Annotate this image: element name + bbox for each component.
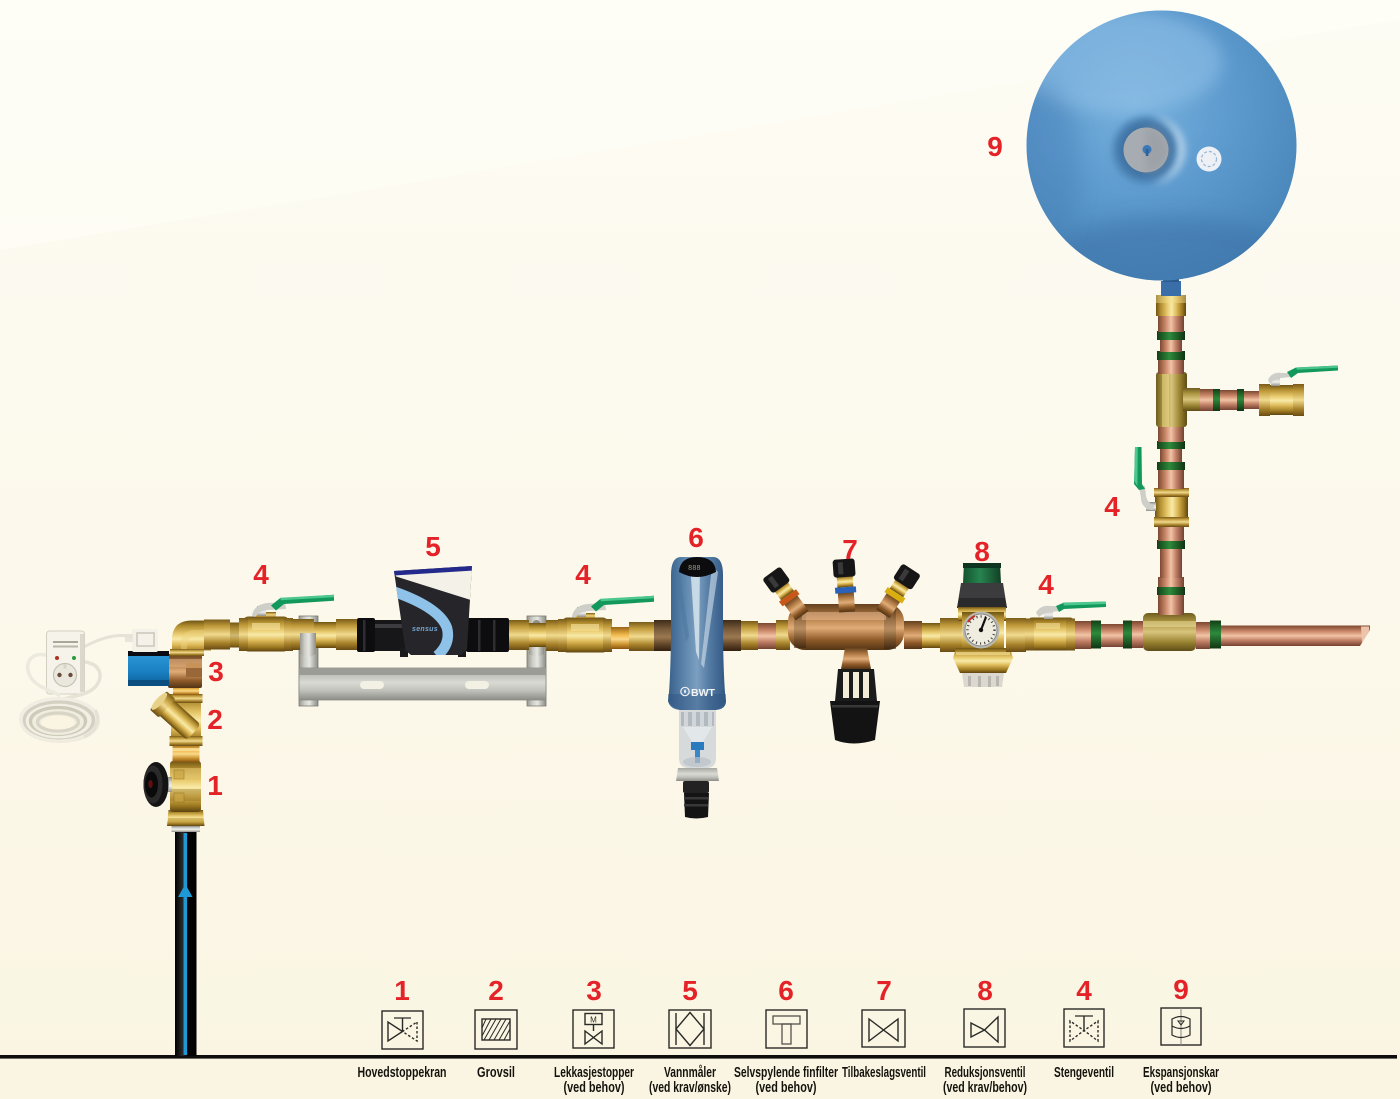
svg-text:1: 1 xyxy=(207,770,223,801)
svg-text:9: 9 xyxy=(987,131,1003,162)
svg-text:4: 4 xyxy=(1104,491,1120,522)
svg-text:5: 5 xyxy=(425,531,441,562)
svg-text:1: 1 xyxy=(394,975,410,1006)
svg-text:sensus: sensus xyxy=(412,626,438,633)
svg-text:Lekkasjestopper: Lekkasjestopper xyxy=(554,1065,634,1081)
svg-text:7: 7 xyxy=(842,534,858,565)
svg-text:(ved behov): (ved behov) xyxy=(756,1080,817,1096)
svg-text:Ekspansjonskar: Ekspansjonskar xyxy=(1143,1065,1219,1081)
svg-text:Vannmåler: Vannmåler xyxy=(664,1065,716,1081)
svg-text:8: 8 xyxy=(977,975,993,1006)
svg-text:Tilbakeslagsventil: Tilbakeslagsventil xyxy=(842,1065,926,1081)
svg-text:Grovsil: Grovsil xyxy=(477,1065,515,1081)
svg-text:Selvspylende finfilter: Selvspylende finfilter xyxy=(734,1065,838,1081)
svg-text:5: 5 xyxy=(682,975,698,1006)
svg-text:8: 8 xyxy=(974,536,990,567)
svg-text:M: M xyxy=(590,1016,597,1025)
svg-text:3: 3 xyxy=(586,975,602,1006)
svg-text:888: 888 xyxy=(688,565,701,573)
svg-text:(ved behov): (ved behov) xyxy=(1151,1080,1212,1096)
svg-text:(ved krav/behov): (ved krav/behov) xyxy=(943,1080,1027,1096)
svg-text:BWT: BWT xyxy=(691,687,715,699)
svg-text:Hovedstoppekran: Hovedstoppekran xyxy=(358,1065,447,1081)
svg-text:Stengeventil: Stengeventil xyxy=(1054,1065,1114,1081)
svg-text:Reduksjonsventil: Reduksjonsventil xyxy=(945,1065,1026,1081)
svg-text:(ved behov): (ved behov) xyxy=(564,1080,625,1096)
svg-text:7: 7 xyxy=(876,975,892,1006)
svg-text:2: 2 xyxy=(207,704,223,735)
svg-text:4: 4 xyxy=(1076,975,1092,1006)
svg-text:4: 4 xyxy=(253,559,269,590)
svg-text:4: 4 xyxy=(1038,569,1054,600)
svg-text:3: 3 xyxy=(208,656,224,687)
svg-text:2: 2 xyxy=(488,975,504,1006)
svg-text:9: 9 xyxy=(1173,974,1189,1005)
svg-text:6: 6 xyxy=(778,975,794,1006)
svg-text:6: 6 xyxy=(688,522,704,553)
svg-text:4: 4 xyxy=(575,559,591,590)
svg-text:(ved krav/ønske): (ved krav/ønske) xyxy=(649,1080,731,1096)
